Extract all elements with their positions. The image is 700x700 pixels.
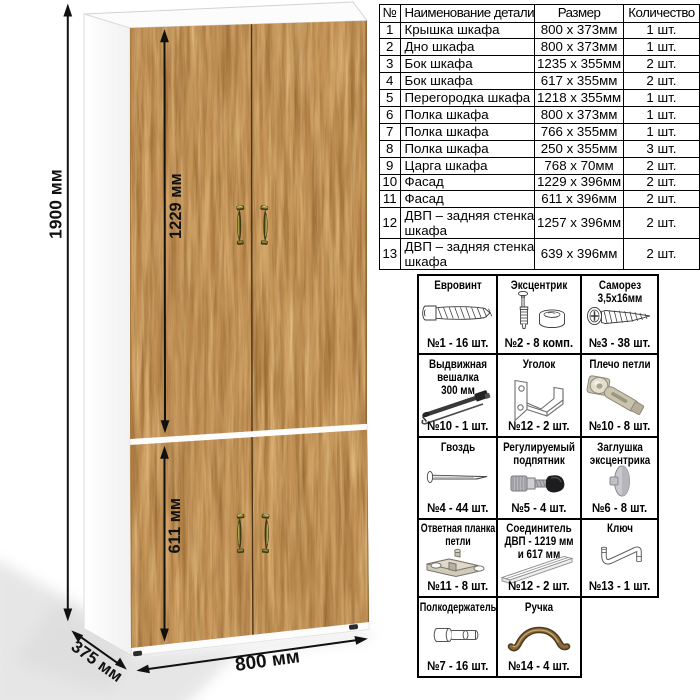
svg-text:1900 мм: 1900 мм [46, 169, 66, 239]
svg-text:611 мм: 611 мм [166, 498, 184, 554]
svg-text:1229 мм: 1229 мм [167, 173, 185, 239]
